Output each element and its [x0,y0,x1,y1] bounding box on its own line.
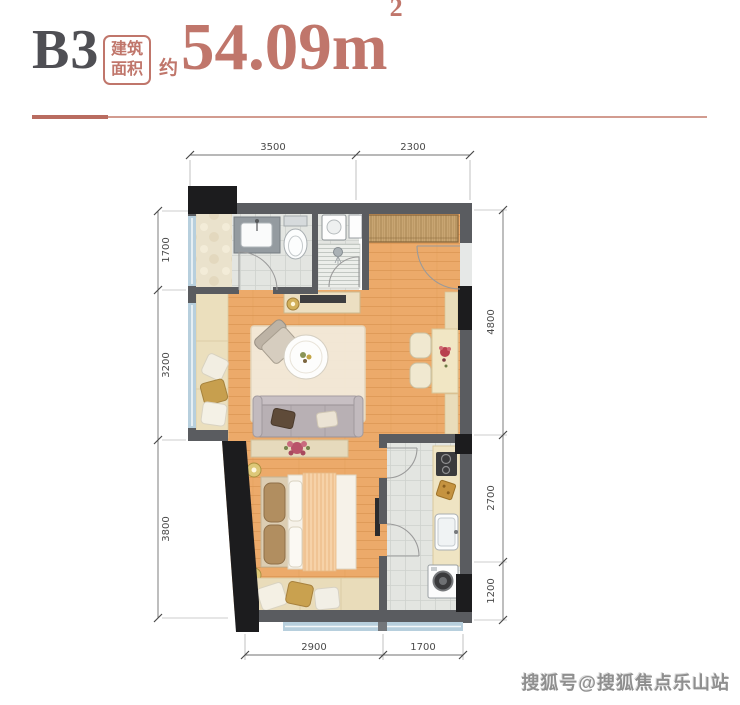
dim-label: 1700 [410,642,435,653]
dim-label: 3500 [260,142,285,153]
console-top-decor [300,295,346,303]
window-bottom-post [378,622,387,631]
blanket [303,473,336,571]
entry [368,215,458,242]
wall-right-lower [460,288,472,623]
dim-label: 4800 [486,309,497,334]
column-bottom-right [456,574,472,612]
wall-bottom [240,610,472,622]
cabinet-box [349,215,362,238]
entry-door-threshold [460,243,472,288]
dimension-right [474,206,507,624]
living-room [251,318,365,457]
table-decor [300,352,306,358]
dim-label: 3800 [161,516,172,541]
wall-kitchen-left-c [379,556,387,612]
toilet-icon [284,229,307,259]
dim-label: 2300 [400,142,425,153]
column-right-middle [458,286,472,330]
bed-pillow [289,527,302,567]
watermark: 搜狐号@搜狐焦点乐山站 [521,669,730,695]
dining-chair [410,363,431,388]
kitchen-faucet-icon [454,530,458,534]
wall-entry-divider [362,214,369,290]
left-window-seat [196,293,230,438]
bed-pillow [289,481,302,521]
dim-label: 3200 [161,352,172,377]
headboard-cushion [264,483,285,522]
hall-console [284,292,360,313]
shower-head-icon [334,248,343,257]
wall-shower-divider [312,214,318,290]
pillow [314,587,340,610]
dim-label: 1200 [486,578,497,603]
pillow [201,401,228,426]
side-cabinet [445,292,458,330]
bathroom-marble-strip [196,214,232,290]
side-cabinet [445,394,458,434]
dim-label: 1700 [161,237,172,262]
column-kitchen-top [455,434,472,454]
wall-kitchen-left-a [379,434,387,448]
dim-label: 2700 [486,485,497,510]
kitchen [428,446,460,598]
column-top-left [188,186,237,214]
sofa [253,396,363,437]
wall-kitchen-left-b [379,478,387,524]
dim-label: 2900 [301,642,326,653]
coffee-table [284,335,328,379]
floor-plan-page: B3 建筑 面积 约 54.09m2 [0,0,740,705]
wall-right-upper [460,203,472,243]
wall-bathroom-b [273,287,318,294]
sofa-cushion [316,411,338,429]
wall-kitchen-top [382,434,460,443]
floor-plan-image: 3500 2300 1700 3200 3800 4800 2700 1200 [0,0,740,705]
dining-chair [410,333,431,358]
wall-bathroom-a [196,287,239,294]
toilet-tank [284,216,307,226]
wall-left-step [188,430,228,441]
headboard-cushion [264,525,285,564]
pillow [285,581,314,608]
bottom-window-seat [248,578,383,612]
